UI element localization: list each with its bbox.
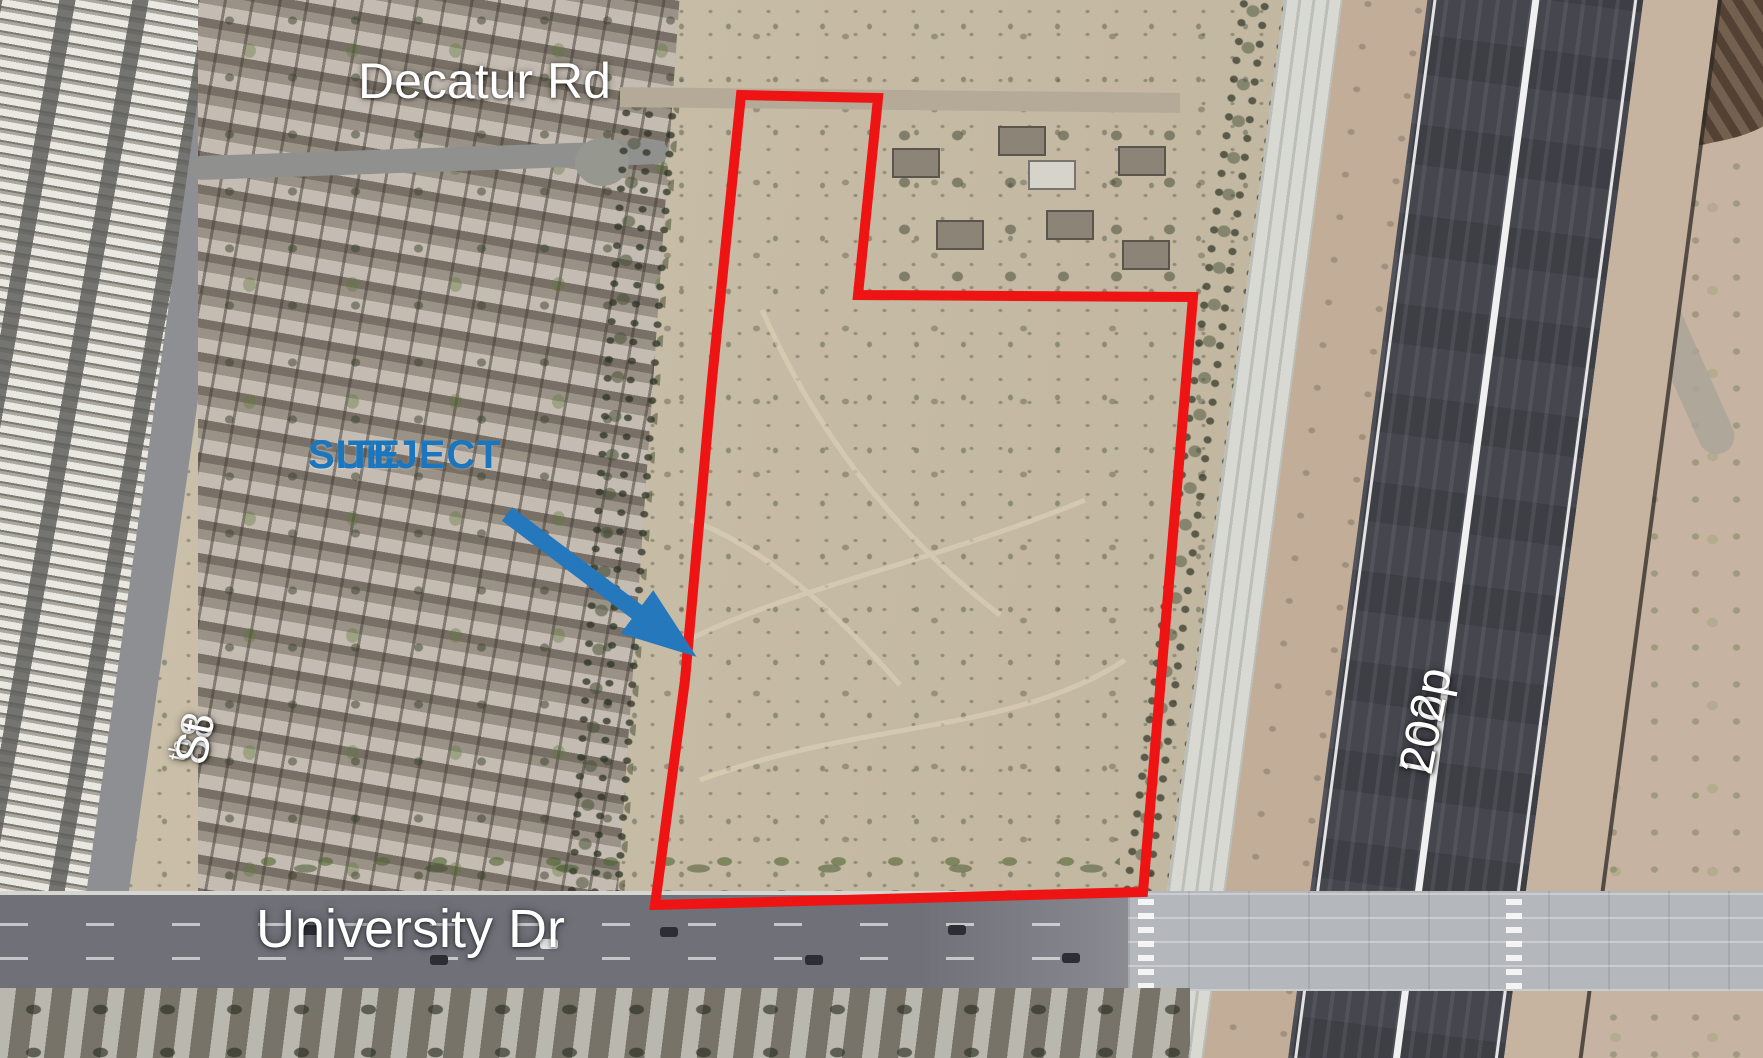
decatur-rd-label: Decatur Rd: [358, 52, 611, 110]
aerial-site-map: Decatur Rd SUBJECT SITE 88th St Universi…: [0, 0, 1763, 1058]
subject-site-outline: [655, 95, 1193, 905]
desert-trails: [688, 310, 1125, 780]
subject-site-arrow-icon: [507, 514, 645, 618]
loop-202-label-line2: 202: [1379, 688, 1469, 781]
subject-site-label-line2: SITE: [308, 420, 401, 490]
university-dr-label: University Dr: [256, 898, 565, 960]
